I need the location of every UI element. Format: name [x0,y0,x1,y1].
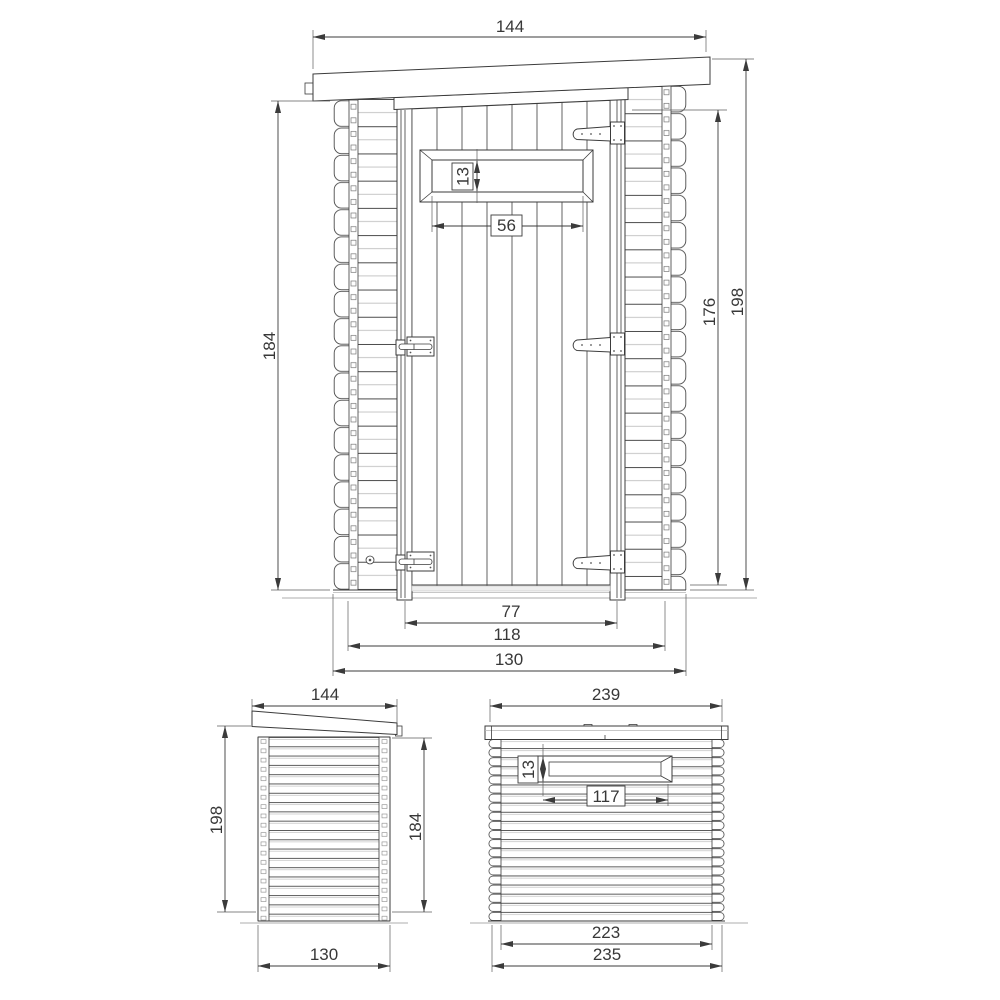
dim-label-rear-overall-width: 235 [593,945,621,964]
door-window [420,150,593,202]
dim-label-front-window-height: 13 [454,167,473,186]
side-log-wall [258,737,390,921]
dim-label-front-window-width: 56 [497,216,516,235]
dim-label-rear-window-width: 117 [592,787,619,806]
dim-label-front-overall-height: 198 [728,288,747,316]
dim-label-front-door-width: 77 [502,602,521,621]
rear-roof [485,725,728,740]
rear-window-glass [549,762,661,776]
dim-label-rear-inner-width: 223 [592,923,620,942]
dim-label-front-left-height: 184 [260,332,279,360]
rear-window [537,756,672,782]
dim-label-front-frame-width: 118 [493,625,520,644]
door-knob [366,556,374,564]
dim-label-front-wall-width: 130 [495,650,523,669]
rear-roof-strip [485,726,728,740]
dim-label-front-opening-height: 176 [700,298,719,326]
dim-label-side-roof-depth: 144 [311,685,339,704]
dim-label-front-roof-width: 144 [496,17,524,36]
dim-label-rear-window-height: 13 [519,760,538,779]
dim-label-side-rear-height: 184 [406,813,425,841]
technical-drawing-page: 144 184 176 198 [0,0,1000,1000]
front-door [366,88,628,601]
front-view: 144 184 176 198 [260,17,757,676]
dim-label-side-front-height: 198 [207,806,226,834]
dim-label-side-floor-depth: 130 [310,945,338,964]
door-latch-bottom [396,552,434,571]
door-threshold [412,586,610,591]
shed-dimension-drawing: 144 184 176 198 [0,0,1000,1000]
door-latch-middle [396,337,434,356]
dim-label-rear-roof-width: 239 [592,685,620,704]
